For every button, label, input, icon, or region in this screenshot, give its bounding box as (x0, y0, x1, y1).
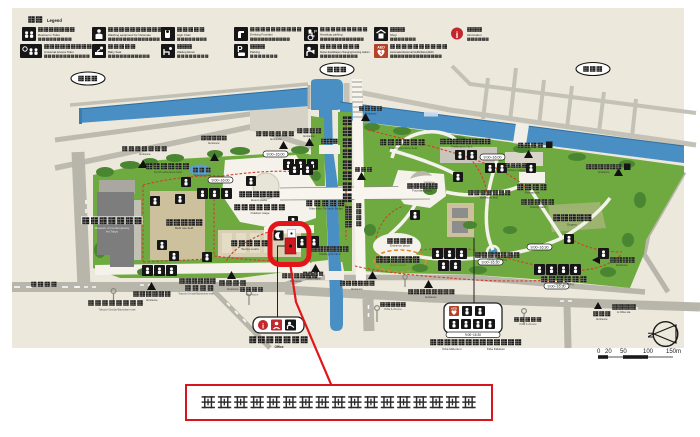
svg-text:9:00~16:00: 9:00~16:00 (266, 153, 284, 157)
svg-text:Entrance: Entrance (227, 287, 239, 291)
svg-text:20: 20 (605, 349, 612, 355)
svg-text:Entrance: Entrance (425, 295, 437, 299)
svg-text:Dogrun: Dogrun (567, 223, 577, 227)
svg-text:Baby Seat: Baby Seat (108, 50, 122, 54)
svg-text:Entrance place: Entrance place (390, 244, 410, 248)
svg-text:Legend: Legend (47, 18, 62, 23)
svg-text:Entrance: Entrance (139, 152, 151, 156)
svg-text:Entrance: Entrance (616, 263, 628, 267)
svg-text:Information: Information (467, 33, 482, 37)
svg-text:Kiba-koen Oh-hashi Bridge: Kiba-koen Oh-hashi Bridge (309, 207, 343, 211)
svg-text:High Chair: High Chair (177, 33, 191, 37)
svg-text:Handicap parking: Handicap parking (320, 33, 343, 37)
svg-text:i: i (456, 30, 459, 40)
svg-text:Suehiro-bashi: Suehiro-bashi (305, 278, 321, 281)
svg-text:9:00~16:30: 9:00~16:30 (465, 333, 481, 337)
svg-text:Kiba 3-chome: Kiba 3-chome (519, 322, 537, 326)
svg-text:North adventure field: North adventure field (154, 170, 182, 174)
svg-text:Entrance: Entrance (351, 287, 363, 291)
svg-text:AED: AED (377, 46, 385, 50)
svg-text:9:00~16:00: 9:00~16:00 (483, 156, 501, 160)
svg-text:i: i (262, 322, 264, 331)
svg-text:Urban greening: Urban greening (554, 282, 574, 286)
svg-text:9:00~16:00: 9:00~16:00 (211, 179, 229, 183)
svg-text:Shop: Shop (390, 33, 397, 37)
svg-text:Tennis courts: Tennis courts (241, 247, 259, 251)
svg-text:Event plaza: Event plaza (251, 198, 267, 202)
svg-text:Parking: Parking (250, 50, 260, 54)
svg-text:Parking lot No.2: Parking lot No.2 (319, 252, 341, 256)
svg-text:Entrance: Entrance (270, 137, 282, 141)
svg-text:AED: AED (451, 307, 457, 311)
svg-text:Washing equipment for Ostomate: Washing equipment for Ostomate (108, 33, 151, 37)
svg-text:Multi use field: Multi use field (175, 226, 194, 230)
svg-text:Barbecue field: Barbecue field (480, 196, 498, 200)
svg-text:Entrance: Entrance (598, 170, 610, 174)
svg-text:Office: Office (274, 345, 283, 349)
svg-text:N: N (647, 332, 656, 338)
svg-text:Event pond: Event pond (390, 263, 406, 267)
svg-text:9:00~16:30: 9:00~16:30 (530, 246, 548, 250)
svg-text:50: 50 (620, 349, 627, 355)
svg-text:Art Tokyo: Art Tokyo (106, 230, 119, 234)
svg-text:Urban greening: Urban greening (487, 258, 507, 262)
svg-text:Waiting Room: Waiting Room (177, 50, 196, 54)
svg-text:Kiba Midorium: Kiba Midorium (442, 347, 462, 351)
svg-text:Kiba Kidslium: Kiba Kidslium (487, 347, 506, 351)
svg-text:100: 100 (643, 349, 654, 355)
svg-text:to Kiba sta.: to Kiba sta. (617, 310, 631, 314)
svg-text:Universal Access Toilet: Universal Access Toilet (44, 50, 74, 54)
svg-text:Automated External Defibrillat: Automated External Defibrillator(AED) (390, 50, 434, 54)
svg-text:Parking lot No.1: Parking lot No.1 (451, 145, 473, 149)
svg-text:Outdoor stage: Outdoor stage (250, 211, 269, 215)
svg-text:150m: 150m (666, 349, 681, 355)
svg-text:Entrance: Entrance (303, 134, 315, 138)
svg-text:Tataering pool: Tataering pool (193, 173, 211, 177)
svg-text:Tokyoto-Gendai-Bijutsukan-mae: Tokyoto-Gendai-Bijutsukan-mae (99, 308, 136, 312)
svg-text:South adventure field: South adventure field (389, 146, 418, 150)
svg-text:Kiba-koen: Kiba-koen (246, 293, 259, 297)
svg-text:Nurse-feed/diaper changing/nur: Nurse-feed/diaper changing/nursing stati… (320, 50, 370, 54)
svg-text:Drinking Fountain: Drinking Fountain (250, 33, 273, 37)
svg-text:Entrance: Entrance (208, 141, 220, 145)
svg-text:Entrance: Entrance (365, 112, 377, 116)
svg-text:Restaurant: Restaurant (525, 191, 540, 195)
svg-text:Kiba 4-chome: Kiba 4-chome (384, 307, 402, 311)
svg-text:Entrance: Entrance (596, 317, 608, 321)
svg-text:P: P (314, 29, 317, 34)
svg-text:Fountain plaza: Fountain plaza (412, 189, 432, 193)
svg-text:Family park: Family park (530, 205, 546, 209)
svg-text:Nursery school: Nursery school (507, 168, 526, 172)
svg-text:Restroom / Toilet: Restroom / Toilet (38, 33, 60, 37)
svg-text:Tokyoto-Gendai-Bijutsukan-mae: Tokyoto-Gendai-Bijutsukan-mae (178, 293, 214, 296)
svg-text:Entrance: Entrance (146, 298, 158, 302)
